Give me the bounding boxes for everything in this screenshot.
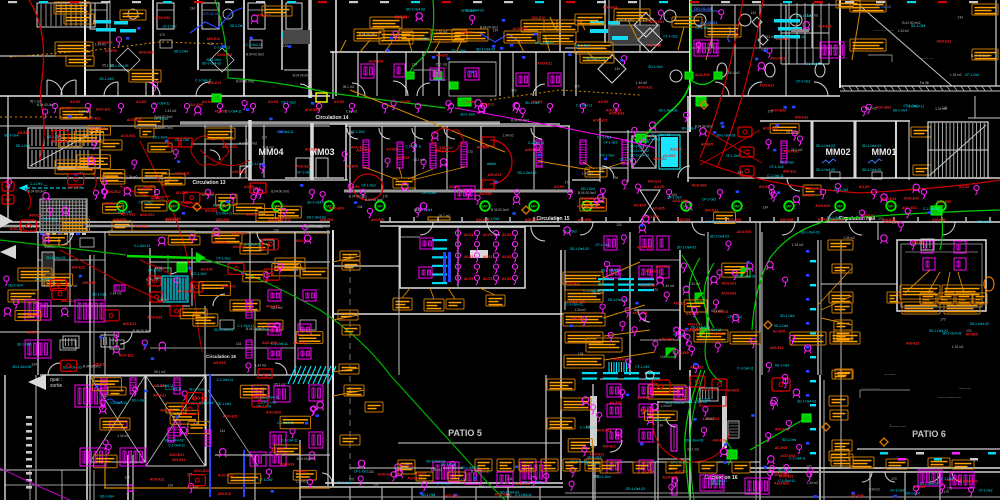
svg-text:SD-1-Oe4-03: SD-1-Oe4-03 [942,332,961,336]
svg-text:1.34 m2: 1.34 m2 [79,110,91,114]
svg-text:SD-1-Oe4-05: SD-1-Oe4-05 [816,168,835,172]
svg-text:AOO-E03: AOO-E03 [147,316,162,320]
svg-text:A1: A1 [262,373,268,378]
svg-text:C-1-Oe4-11: C-1-Oe4-11 [429,78,446,82]
svg-text:A00-E00: A00-E00 [677,218,690,222]
svg-text:AO-E05: AO-E05 [436,54,448,58]
svg-text:CF-1-Oe2: CF-1-Oe2 [597,136,611,140]
svg-text:AO-E05: AO-E05 [686,312,698,316]
svg-text:AOO-E21: AOO-E21 [565,282,580,286]
svg-text:AOO-E21: AOO-E21 [223,414,238,418]
svg-text:AOO-E21: AOO-E21 [150,477,165,481]
svg-text:B.04 00.0m2: B.04 00.0m2 [246,52,264,56]
svg-text:AOO-E21: AOO-E21 [119,354,134,358]
svg-text:1.34 m2: 1.34 m2 [126,175,138,179]
svg-text:170: 170 [74,145,80,149]
svg-text:AOO-E03: AOO-E03 [763,126,778,130]
svg-text:AO-E05: AO-E05 [701,143,713,147]
svg-text:AOO-E03: AOO-E03 [166,217,181,221]
svg-text:AO-E05: AO-E05 [634,204,646,208]
svg-text:CF-1-Oe2: CF-1-Oe2 [696,398,710,402]
svg-text:A0-E1: A0-E1 [464,277,474,281]
svg-text:AO-E05: AO-E05 [246,213,258,217]
svg-text:134: 134 [31,363,37,367]
svg-text:170: 170 [767,110,773,114]
svg-text:SD-1-Oe4: SD-1-Oe4 [174,49,189,53]
svg-text:SD-1-Oe4: SD-1-Oe4 [460,113,475,117]
svg-text:C-1-Oe4-11: C-1-Oe4-11 [157,384,174,388]
svg-text:SD-1-Oe4-03: SD-1-Oe4-03 [801,231,820,235]
svg-text:AO-E05: AO-E05 [205,209,217,213]
svg-text:PATIO 6: PATIO 6 [912,429,946,439]
svg-text:05.1 m2: 05.1 m2 [439,214,451,218]
svg-text:AO-E05: AO-E05 [105,49,117,53]
svg-text:A00-E12: A00-E12 [602,444,615,448]
svg-text:A00-E12: A00-E12 [151,197,164,201]
svg-text:B.04 00.0m2: B.04 00.0m2 [293,74,311,78]
svg-text:AOO-E21: AOO-E21 [356,148,371,152]
svg-text:134: 134 [578,352,584,356]
svg-text:|_____ ___: |_____ ___ [890,423,906,427]
svg-text:C-1-Oe4-11: C-1-Oe4-11 [195,78,212,82]
svg-text:AO-E05: AO-E05 [395,16,407,20]
svg-text:SD-1-Oe4: SD-1-Oe4 [782,438,797,442]
svg-text:CF-1-Oe2: CF-1-Oe2 [696,26,710,30]
svg-text:1.34 m2: 1.34 m2 [807,481,819,485]
svg-text:SD-1-Oe4: SD-1-Oe4 [230,24,245,28]
svg-text:1.34 m2: 1.34 m2 [262,146,274,150]
svg-text:A00-E12: A00-E12 [461,30,474,34]
svg-text:MP: MP [734,205,740,209]
svg-text:CF-1-Oe2: CF-1-Oe2 [354,470,368,474]
svg-text:CF-1-Oe2: CF-1-Oe2 [192,272,206,276]
svg-text:AO-E0: AO-E0 [554,185,564,189]
svg-text:A00-E12: A00-E12 [818,25,831,29]
svg-text:AOO-E21: AOO-E21 [637,245,652,249]
svg-text:05.1 m2: 05.1 m2 [343,85,355,89]
svg-text:SD-1-Oe4: SD-1-Oe4 [906,492,921,496]
svg-text:A00-E12: A00-E12 [906,341,919,345]
svg-text:1.34 m2: 1.34 m2 [117,434,129,438]
svg-text:170: 170 [159,33,165,37]
svg-text:A00-E12: A00-E12 [775,427,788,431]
svg-text:A00-E12: A00-E12 [531,16,544,20]
svg-text:SD-1-Oe4-03: SD-1-Oe4-03 [919,482,938,486]
svg-text:MP: MP [837,205,843,209]
svg-text:A00-E12: A00-E12 [648,44,661,48]
svg-text:134: 134 [958,15,964,19]
svg-text:AOO-E21: AOO-E21 [221,284,236,288]
svg-text:AOO-E03: AOO-E03 [771,109,786,113]
svg-text:05.1 m2: 05.1 m2 [310,224,322,228]
svg-text:AOO-E03: AOO-E03 [963,479,978,483]
svg-text:C-1-Oe4-11: C-1-Oe4-11 [217,378,234,382]
svg-text:170: 170 [565,181,571,185]
svg-text:134: 134 [273,228,279,232]
svg-text:AO-E0: AO-E0 [759,185,769,189]
svg-text:CF-1-Oe2: CF-1-Oe2 [595,243,609,247]
svg-text:AO-E05: AO-E05 [727,389,739,393]
svg-text:170: 170 [878,217,884,221]
svg-text:170: 170 [246,139,252,143]
svg-text:A00-E12: A00-E12 [217,492,230,496]
svg-text:SD-1-Oe4-03: SD-1-Oe4-03 [710,234,729,238]
svg-text:05.1 m2: 05.1 m2 [413,158,425,162]
svg-text:B.04 00.0m2: B.04 00.0m2 [359,32,377,36]
svg-text:AOO-E03: AOO-E03 [329,206,344,210]
svg-text:AOO-E21: AOO-E21 [296,165,311,169]
svg-text:SD-1-Oe4: SD-1-Oe4 [978,220,993,224]
svg-text:B.04 00.0m2: B.04 00.0m2 [154,115,172,119]
svg-text:C-1-Oe4-11: C-1-Oe4-11 [576,104,593,108]
svg-text:134: 134 [283,44,289,48]
svg-text:CF-1-Oe2: CF-1-Oe2 [297,170,311,174]
svg-text:C-1-Oe4-11: C-1-Oe4-11 [789,456,806,460]
svg-text:CO-01-01: CO-01-01 [203,12,219,16]
svg-text:170: 170 [468,150,474,154]
svg-text:170: 170 [574,84,580,88]
svg-text:AOO-E03: AOO-E03 [904,197,919,201]
svg-text:A00-E00: A00-E00 [113,218,126,222]
svg-text:AO-E0: AO-E0 [136,100,146,104]
svg-text:A0-E1: A0-E1 [483,233,493,237]
svg-text:AOO-E03: AOO-E03 [659,338,674,342]
svg-text:CF-1-Oe2: CF-1-Oe2 [728,315,742,319]
svg-text:A00-E00: A00-E00 [780,218,793,222]
svg-text:A00-E12: A00-E12 [103,202,116,206]
svg-text:A0-E1: A0-E1 [502,233,512,237]
svg-text:C-1-Oe4-11: C-1-Oe4-11 [153,102,170,106]
svg-text:AOO-E21: AOO-E21 [936,39,951,43]
svg-text:SD-1-Oe4: SD-1-Oe4 [576,43,591,47]
svg-text:05.1 m2: 05.1 m2 [66,284,78,288]
svg-text:AO-E05: AO-E05 [305,148,317,152]
svg-text:170: 170 [947,487,953,491]
svg-text:AO-E05: AO-E05 [966,333,978,337]
svg-text:170: 170 [461,478,467,482]
svg-text:AOO-E21: AOO-E21 [721,282,736,286]
svg-text:AOO-E03: AOO-E03 [218,473,233,477]
svg-text:C-1-Oe4-11: C-1-Oe4-11 [277,421,294,425]
svg-text:134: 134 [507,477,513,481]
svg-text:05.1 m2: 05.1 m2 [295,268,307,272]
svg-text:SD-1-Oe4-03: SD-1-Oe4-03 [307,200,326,204]
svg-text:AOO-E03: AOO-E03 [200,192,215,196]
svg-text:B.04 00.0m2: B.04 00.0m2 [133,329,151,333]
svg-text:AOO-E03: AOO-E03 [692,183,707,187]
svg-text:SD-1-Oe4: SD-1-Oe4 [17,343,32,347]
svg-text:SD-1-Oe4: SD-1-Oe4 [206,58,221,62]
svg-text:134: 134 [102,394,108,398]
svg-text:AOO-E03: AOO-E03 [695,73,710,77]
svg-text:AOO-E03: AOO-E03 [139,50,154,54]
svg-text:1.34 m2: 1.34 m2 [582,172,594,176]
svg-text:A00-E00: A00-E00 [371,218,384,222]
svg-text:A00-E12: A00-E12 [72,265,85,269]
svg-text:SD-1-Oe4-03: SD-1-Oe4-03 [797,400,816,404]
svg-text:AOO-E21: AOO-E21 [537,62,552,66]
svg-text:AOO-E03: AOO-E03 [90,126,105,130]
svg-text:SD-1-Oe4-03: SD-1-Oe4-03 [165,438,184,442]
svg-text:AO-E05: AO-E05 [59,106,71,110]
svg-text:AOO-E03: AOO-E03 [155,16,170,20]
svg-text:05.1 m2: 05.1 m2 [271,306,283,310]
svg-text:SD-1-Oe4: SD-1-Oe4 [421,493,436,497]
svg-text:MM02: MM02 [825,147,850,157]
svg-text:C-1-Oe4-11: C-1-Oe4-11 [788,35,805,39]
svg-text:AOO-E21: AOO-E21 [646,270,661,274]
svg-text:SD-1-Oe4: SD-1-Oe4 [525,101,540,105]
svg-text:SD-1-Oe4: SD-1-Oe4 [47,135,62,139]
svg-text:SD-1-Oe4-02: SD-1-Oe4-02 [630,149,649,153]
svg-text:C-1-Oe4-11: C-1-Oe4-11 [134,244,151,248]
svg-text:A00-E12: A00-E12 [713,332,726,336]
svg-text:____ __: ____ __ [958,385,971,389]
svg-text:C-1-Oe4-11: C-1-Oe4-11 [418,37,435,41]
svg-text:C-1-Oe4-11: C-1-Oe4-11 [767,174,784,178]
svg-text:C-1-Oe4-11: C-1-Oe4-11 [566,302,583,306]
svg-text:AOO-E21: AOO-E21 [445,494,460,498]
svg-text:SD-1-Oe4: SD-1-Oe4 [189,387,204,391]
svg-text:05.1 m2: 05.1 m2 [711,309,723,313]
svg-text:CF-1-Oe2: CF-1-Oe2 [162,24,176,28]
svg-text:C-1-Oe4-11: C-1-Oe4-11 [168,444,185,448]
svg-text:C-1-Oe4 ___: C-1-Oe4 ___ [30,182,49,186]
svg-text:AOO-E21: AOO-E21 [513,27,528,31]
svg-text:B.04 00.0m2: B.04 00.0m2 [578,191,596,195]
svg-text:A00-E12: A00-E12 [712,439,725,443]
svg-text:AO-E0: AO-E0 [654,185,664,189]
svg-text:CF-1-Oe2: CF-1-Oe2 [362,184,376,188]
svg-text:A0-E1: A0-E1 [483,277,493,281]
svg-text:AO-E0: AO-E0 [400,100,410,104]
svg-text:134: 134 [414,208,420,212]
svg-text:CF-1-Oe2: CF-1-Oe2 [939,477,953,481]
svg-text:1.34 m2: 1.34 m2 [843,236,855,240]
svg-text:SD-1-Oe4-03: SD-1-Oe4-03 [214,328,233,332]
svg-text:AO-E05: AO-E05 [293,341,305,345]
svg-text:170: 170 [383,194,389,198]
svg-text:C-1-Oe4-11: C-1-Oe4-11 [778,479,795,483]
svg-text:AOO-E03: AOO-E03 [266,410,281,414]
svg-text:05.1 m2: 05.1 m2 [154,370,166,374]
svg-text:AO-E05: AO-E05 [775,446,787,450]
svg-text:SD-1-Oe4-03: SD-1-Oe4-03 [63,366,82,370]
svg-text:C-1-Oe4-11: C-1-Oe4-11 [244,242,261,246]
svg-text:SD-1-Oe4-03: SD-1-Oe4-03 [518,171,537,175]
svg-text:AO-E05: AO-E05 [802,193,814,197]
svg-text:CF-1-Oe2: CF-1-Oe2 [461,9,475,13]
svg-text:170: 170 [966,329,972,333]
svg-text:CF-1-Oe2: CF-1-Oe2 [702,197,716,201]
svg-text:SD-1-Oe4-03: SD-1-Oe4-03 [970,322,989,326]
svg-text:AO-E0: AO-E0 [334,100,344,104]
svg-text:170: 170 [349,477,355,481]
svg-text:________ ____: ________ ____ [872,27,894,31]
svg-text:05.1 m2: 05.1 m2 [274,383,286,387]
svg-text:05.1 m2: 05.1 m2 [213,204,225,208]
svg-text:B.04 00.0m2: B.04 00.0m2 [511,118,529,122]
svg-text:134: 134 [357,205,363,209]
svg-text:MP: MP [171,205,177,209]
svg-text:__ ____: __ ____ [883,371,896,375]
svg-text:AOO-E21: AOO-E21 [96,108,111,112]
svg-text:134: 134 [236,342,242,346]
svg-text:CO-01-01: CO-01-01 [700,20,718,25]
svg-text:PATIO 5: PATIO 5 [448,428,482,438]
svg-text:134: 134 [348,131,354,135]
svg-text:MP: MP [786,205,792,209]
svg-text:SD-1-Oe4: SD-1-Oe4 [780,314,795,318]
svg-text:MP: MP [377,205,383,209]
svg-text:A00-E00: A00-E00 [932,218,945,222]
svg-text:134: 134 [738,170,744,174]
svg-text:CF-1-Oe2: CF-1-Oe2 [671,461,685,465]
svg-text:A0-E1: A0-E1 [502,255,512,259]
svg-text:SD-1-Oe4: SD-1-Oe4 [100,495,115,499]
svg-text:AO-E0: AO-E0 [70,100,80,104]
svg-text:SD-1-Oe4-03: SD-1-Oe4-03 [12,365,31,369]
svg-text:B.04 00.0m2: B.04 00.0m2 [155,126,173,130]
svg-text:A0-E1: A0-E1 [464,233,474,237]
svg-text:AOO-E21: AOO-E21 [140,213,155,217]
svg-text:SD-1-Oe4-03: SD-1-Oe4-03 [716,133,735,137]
svg-text:B.04 00.0m2: B.04 00.0m2 [271,190,289,194]
svg-text:05.1 m2: 05.1 m2 [764,35,776,39]
svg-text:A00-E12: A00-E12 [28,313,41,317]
svg-text:1.34 m2: 1.34 m2 [436,30,448,34]
svg-text:AOO-E21: AOO-E21 [86,117,101,121]
svg-text:SD-1-Oe4: SD-1-Oe4 [132,398,147,402]
svg-text:134: 134 [220,429,226,433]
svg-text:SD-1-Oe4: SD-1-Oe4 [775,364,790,368]
svg-text:CF-1-Oe2: CF-1-Oe2 [436,482,450,486]
svg-text:AOO-E03: AOO-E03 [369,60,384,64]
svg-text:AOO-E03: AOO-E03 [936,200,951,204]
svg-text:SD-1-Oe4-03: SD-1-Oe4-03 [570,247,589,251]
svg-text:SD-1-Oe4-03: SD-1-Oe4-03 [677,246,696,250]
svg-text:B.04 00.0m2: B.04 00.0m2 [28,189,46,193]
svg-text:A00-E12: A00-E12 [439,146,452,150]
svg-text:Circulation 14: Circulation 14 [315,115,348,121]
svg-text:AO-E05: AO-E05 [652,206,664,210]
svg-text:C-1-Oe4-11: C-1-Oe4-11 [245,43,262,47]
svg-text:SD-1-Oe4: SD-1-Oe4 [893,108,908,112]
svg-text:134: 134 [125,475,131,479]
svg-text:1.34 m2: 1.34 m2 [702,417,714,421]
svg-text:AO-E05: AO-E05 [479,192,491,196]
svg-text:1.34 m2: 1.34 m2 [792,243,804,247]
svg-text:170: 170 [891,477,897,481]
svg-text:AOO-E03: AOO-E03 [217,53,232,57]
svg-text:1.34 m2: 1.34 m2 [636,81,648,85]
svg-text:C-1-Oe4-11: C-1-Oe4-11 [705,328,722,332]
svg-text:AO-E0: AO-E0 [959,185,969,189]
svg-text:A00-E12: A00-E12 [172,458,185,462]
svg-text:1.34 m2: 1.34 m2 [868,488,880,492]
svg-text:134: 134 [156,266,162,270]
svg-text:170: 170 [44,235,50,239]
svg-text:A00-E12: A00-E12 [278,218,291,222]
svg-text:AO-E05: AO-E05 [296,470,308,474]
svg-text:AOO-E03: AOO-E03 [609,111,624,115]
svg-text:SD-1-Oe4: SD-1-Oe4 [153,135,168,139]
svg-text:1.34 m2: 1.34 m2 [255,364,267,368]
svg-text:C-1-Oe4-11: C-1-Oe4-11 [225,110,242,114]
svg-text:AOO-E03: AOO-E03 [736,230,751,234]
svg-text:AOO-E03: AOO-E03 [280,463,295,467]
svg-text:AO-E05: AO-E05 [663,154,675,158]
svg-text:AOO-E03: AOO-E03 [876,106,891,110]
svg-text:A00-E12: A00-E12 [178,289,191,293]
svg-text:A00-E12: A00-E12 [232,170,245,174]
svg-text:AOO-E21: AOO-E21 [121,134,136,138]
svg-text:134: 134 [658,424,664,428]
svg-text:A00-E12: A00-E12 [257,14,270,18]
svg-text:C-1-Oe4-11: C-1-Oe4-11 [737,366,754,370]
svg-text:SD-1-Oe4: SD-1-Oe4 [778,468,793,472]
svg-text:170: 170 [590,445,596,449]
svg-text:170: 170 [593,474,599,478]
svg-text:A00-E12: A00-E12 [207,37,220,41]
svg-text:Fa 36: Fa 36 [920,81,929,85]
svg-text:134: 134 [613,176,619,180]
svg-text:C-1-Oe4-11: C-1-Oe4-11 [281,439,298,443]
svg-text:CF-1-Oe2: CF-1-Oe2 [834,188,848,192]
svg-text:1.34 m2: 1.34 m2 [689,282,701,286]
svg-text:SD-1-Oe4-03: SD-1-Oe4-03 [684,438,703,442]
svg-text:B.04 00.0m2: B.04 00.0m2 [37,103,55,107]
svg-text:MP: MP [531,205,537,209]
svg-text:05.1 m2: 05.1 m2 [791,148,803,152]
svg-text:SD-1-Oe4: SD-1-Oe4 [217,402,232,406]
svg-text:AO-E05: AO-E05 [851,494,863,498]
svg-text:A00-E12: A00-E12 [592,206,605,210]
svg-text:AOO-E03: AOO-E03 [602,5,617,9]
svg-text:AOO-E21: AOO-E21 [593,119,608,123]
svg-text:AOO-E21: AOO-E21 [127,118,142,122]
svg-text:1.34 m2: 1.34 m2 [157,298,169,302]
svg-text:170: 170 [373,484,379,488]
svg-text:1.34 m2: 1.34 m2 [950,73,962,77]
svg-text:SD-1-Oe4: SD-1-Oe4 [648,65,663,69]
svg-text:C-1-Oe4-11: C-1-Oe4-11 [110,401,127,405]
svg-text:134: 134 [190,6,196,10]
svg-text:B.04 00.0m2: B.04 00.0m2 [246,327,264,331]
svg-text:AO-E05: AO-E05 [477,146,489,150]
svg-text:134: 134 [671,193,677,197]
svg-text:____ _____ ___: ____ _____ ___ [937,394,961,398]
svg-text:AOO-E21: AOO-E21 [175,172,190,176]
svg-text:CF-1-Oe2: CF-1-Oe2 [139,201,153,205]
svg-text:CF-1-Oe2: CF-1-Oe2 [44,218,58,222]
svg-text:CF-1-Oe2: CF-1-Oe2 [118,210,132,214]
svg-text:134: 134 [942,106,948,110]
svg-text:A00-E12: A00-E12 [673,301,686,305]
svg-text:CF-1-Oe2: CF-1-Oe2 [780,160,794,164]
svg-text:AO-E05: AO-E05 [176,191,188,195]
svg-text:05.1 m2: 05.1 m2 [688,447,700,451]
svg-text:AOO-E03: AOO-E03 [581,197,596,201]
svg-text:_____ __: _____ __ [920,55,934,59]
svg-text:AOO-E21: AOO-E21 [169,453,184,457]
svg-text:C-1-Oe4-11: C-1-Oe4-11 [271,342,288,346]
svg-text:SD-1-Oe4: SD-1-Oe4 [774,324,789,328]
svg-text:CF-1-Oe2: CF-1-Oe2 [485,217,499,221]
svg-text:AO-E05: AO-E05 [213,361,225,365]
svg-text:AOO-E21: AOO-E21 [770,57,785,61]
svg-text:A00-E12: A00-E12 [770,346,783,350]
